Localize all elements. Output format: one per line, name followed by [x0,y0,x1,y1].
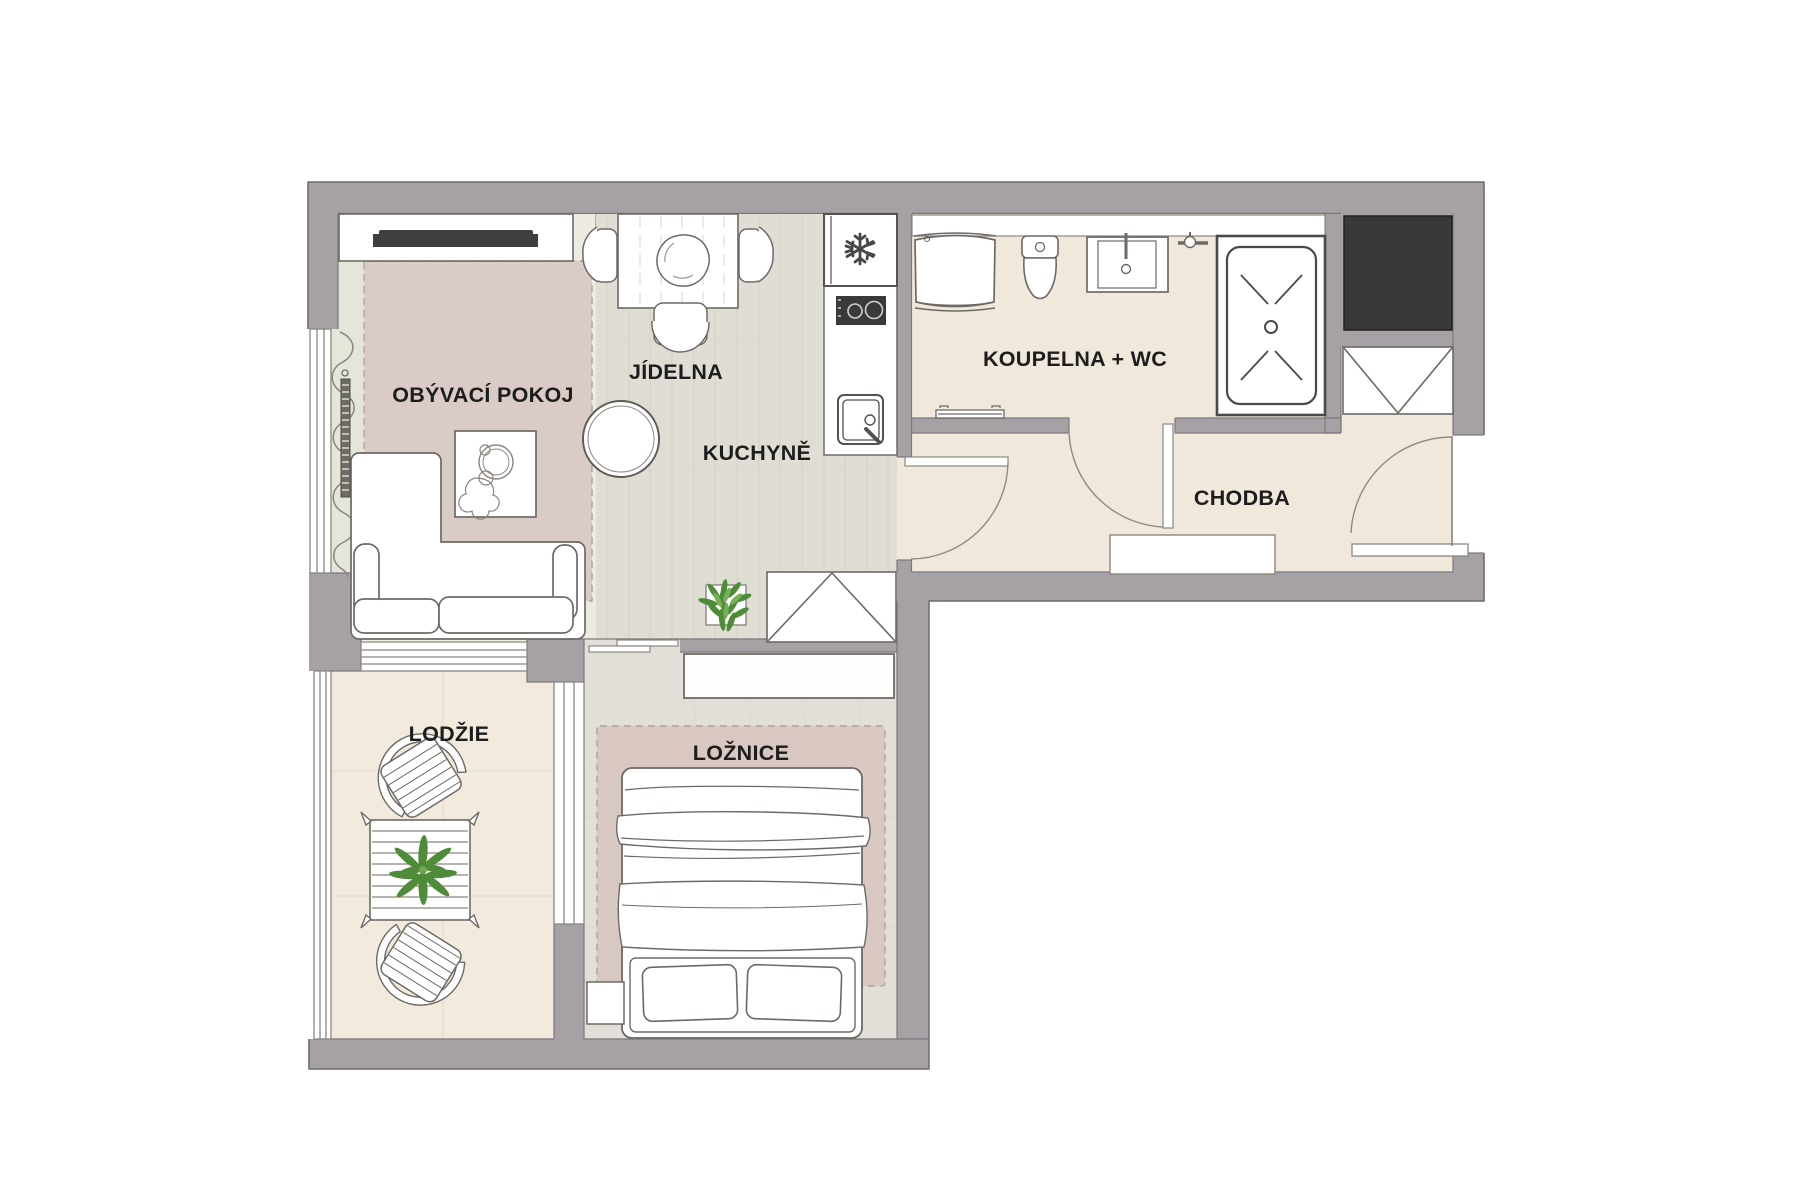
svg-text:KOUPELNA + WC: KOUPELNA + WC [983,347,1167,371]
svg-text:KUCHYNĚ: KUCHYNĚ [703,440,811,465]
svg-text:LOŽNICE: LOŽNICE [693,740,789,765]
svg-text:LODŽIE: LODŽIE [409,721,490,746]
svg-text:JÍDELNA: JÍDELNA [629,359,723,384]
svg-text:CHODBA: CHODBA [1194,486,1290,510]
svg-text:OBÝVACÍ POKOJ: OBÝVACÍ POKOJ [392,382,574,407]
